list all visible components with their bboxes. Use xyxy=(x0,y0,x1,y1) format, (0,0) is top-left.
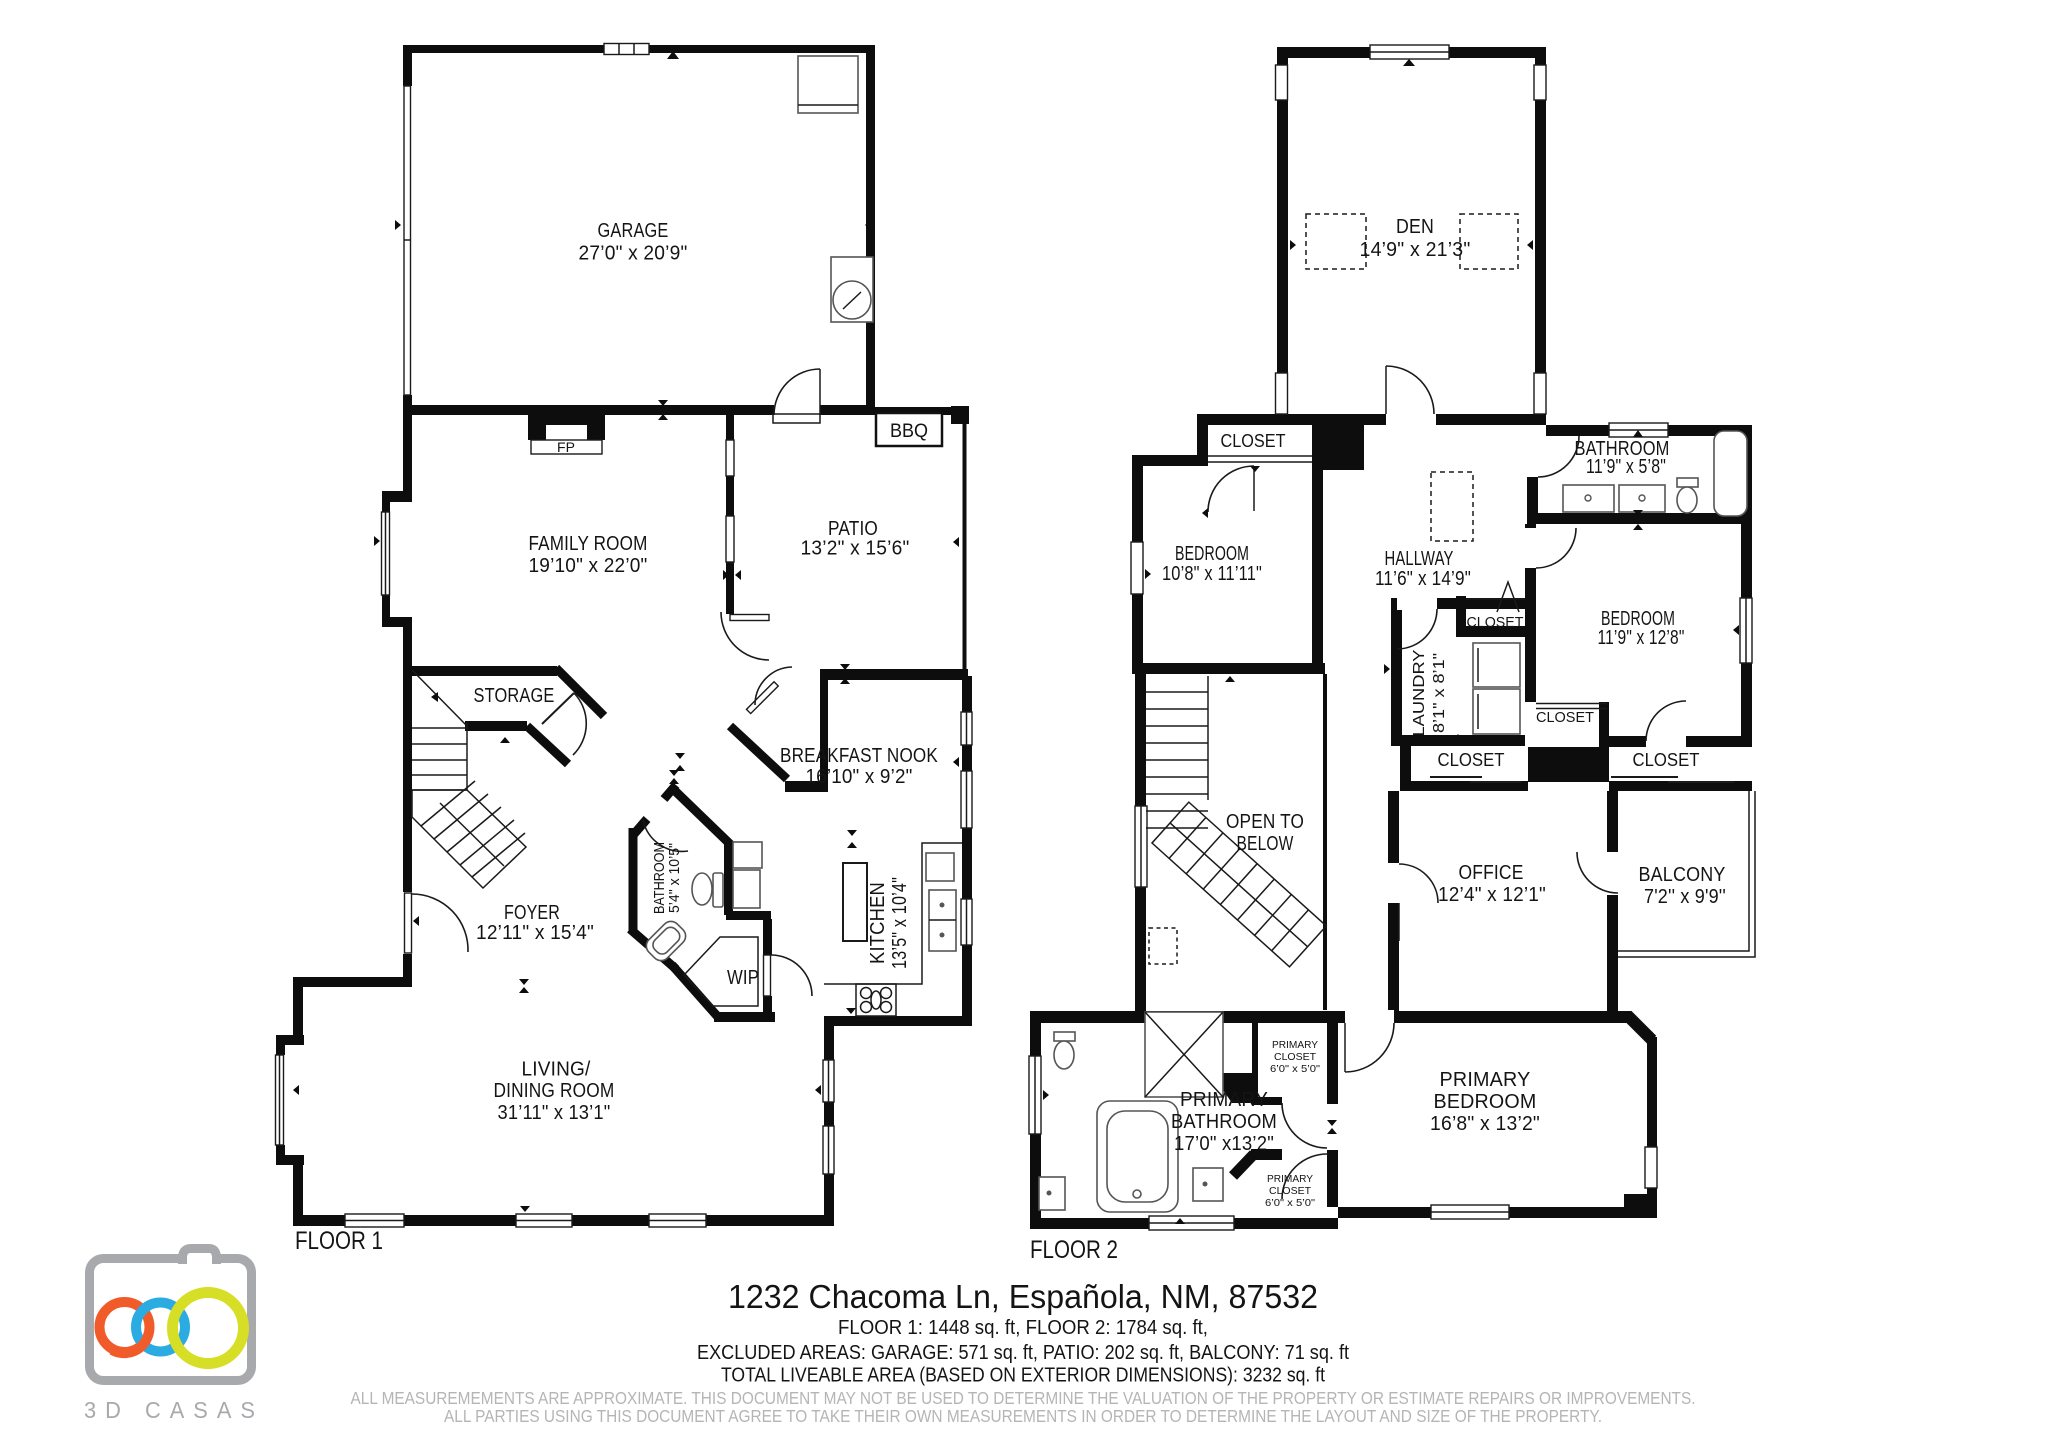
svg-text:BBQ: BBQ xyxy=(890,421,928,442)
svg-text:12’4" x 12’1": 12’4" x 12’1" xyxy=(1438,884,1546,906)
svg-text:TOTAL LIVEABLE AREA (BASED ON: TOTAL LIVEABLE AREA (BASED ON EXTERIOR D… xyxy=(721,1364,1325,1387)
svg-text:14’9" x 21’3": 14’9" x 21’3" xyxy=(1360,239,1471,261)
svg-text:5’4" x 10’5": 5’4" x 10’5" xyxy=(666,843,683,913)
svg-text:DEN: DEN xyxy=(1396,216,1434,238)
svg-text:CLOSET: CLOSET xyxy=(1438,750,1505,770)
svg-text:LAUNDRY: LAUNDRY xyxy=(1411,649,1428,736)
svg-text:ALL PARTIES USING THIS DOCUMEN: ALL PARTIES USING THIS DOCUMENT AGREE TO… xyxy=(444,1406,1602,1426)
svg-text:PRIMARY: PRIMARY xyxy=(1440,1069,1531,1091)
svg-text:13’2" x 15’6": 13’2" x 15’6" xyxy=(801,538,910,560)
svg-text:CLOSET: CLOSET xyxy=(1536,709,1594,726)
svg-text:BATHROOM: BATHROOM xyxy=(1171,1111,1277,1133)
svg-text:LIVING/: LIVING/ xyxy=(522,1059,591,1081)
svg-text:PRIMARY: PRIMARY xyxy=(1272,1039,1318,1051)
svg-text:BEDROOM: BEDROOM xyxy=(1434,1091,1537,1113)
svg-text:11’9" x 12’8": 11’9" x 12’8" xyxy=(1598,627,1685,649)
svg-text:BELOW: BELOW xyxy=(1237,833,1294,855)
svg-text:FAMILY ROOM: FAMILY ROOM xyxy=(529,533,648,555)
svg-text:6’0" x 5’0": 6’0" x 5’0" xyxy=(1270,1063,1320,1075)
svg-text:CLOSET: CLOSET xyxy=(1221,431,1286,451)
svg-text:11’6" x 14’9": 11’6" x 14’9" xyxy=(1375,568,1471,590)
svg-text:KITCHEN: KITCHEN xyxy=(867,882,889,964)
svg-text:13’5" x 10’4": 13’5" x 10’4" xyxy=(889,877,911,969)
svg-text:CLOSET: CLOSET xyxy=(1467,614,1524,631)
svg-text:CLOSET: CLOSET xyxy=(1269,1185,1312,1197)
svg-text:FLOOR 2: FLOOR 2 xyxy=(1030,1236,1118,1264)
svg-text:EXCLUDED AREAS: GARAGE: 571 sq: EXCLUDED AREAS: GARAGE: 571 sq. ft, PATI… xyxy=(697,1341,1349,1364)
svg-text:DINING ROOM: DINING ROOM xyxy=(494,1080,615,1102)
svg-text:31’11" x 13’1": 31’11" x 13’1" xyxy=(498,1102,611,1124)
svg-text:HALLWAY: HALLWAY xyxy=(1385,548,1454,570)
svg-text:CLOSET: CLOSET xyxy=(1633,750,1700,770)
svg-text:3D CASAS: 3D CASAS xyxy=(84,1397,264,1423)
svg-text:OFFICE: OFFICE xyxy=(1459,862,1524,884)
svg-text:BALCONY: BALCONY xyxy=(1639,864,1726,886)
svg-text:FLOOR 1: FLOOR 1 xyxy=(295,1227,383,1255)
svg-text:PRIMARY: PRIMARY xyxy=(1180,1089,1268,1111)
svg-text:16’10" x 9’2": 16’10" x 9’2" xyxy=(806,766,913,788)
svg-text:10’8" x 11’11": 10’8" x 11’11" xyxy=(1162,563,1262,585)
svg-text:BREAKFAST NOOK: BREAKFAST NOOK xyxy=(780,745,938,767)
svg-text:17’0" x13’2": 17’0" x13’2" xyxy=(1174,1133,1274,1155)
svg-text:BEDROOM: BEDROOM xyxy=(1175,543,1249,565)
svg-text:16’8" x 13’2": 16’8" x 13’2" xyxy=(1430,1113,1540,1135)
svg-text:6’0" x 5’0": 6’0" x 5’0" xyxy=(1265,1197,1315,1209)
svg-text:CLOSET: CLOSET xyxy=(1274,1051,1317,1063)
svg-text:FP: FP xyxy=(557,439,575,455)
svg-text:FOYER: FOYER xyxy=(504,902,560,924)
svg-text:ALL MEASUREMEMENTS ARE APPROXI: ALL MEASUREMEMENTS ARE APPROXIMATE. THIS… xyxy=(351,1388,1696,1408)
svg-text:FLOOR 1: 1448 sq. ft, FLOOR 2:: FLOOR 1: 1448 sq. ft, FLOOR 2: 1784 sq. … xyxy=(838,1316,1208,1339)
svg-text:PRIMARY: PRIMARY xyxy=(1267,1173,1313,1185)
svg-text:8’1" x 8’1": 8’1" x 8’1" xyxy=(1431,653,1448,733)
svg-text:12’11" x 15’4": 12’11" x 15’4" xyxy=(476,922,594,944)
svg-text:27’0" x 20’9": 27’0" x 20’9" xyxy=(579,243,688,265)
svg-text:11’9" x 5’8": 11’9" x 5’8" xyxy=(1586,456,1666,478)
svg-text:OPEN TO: OPEN TO xyxy=(1226,811,1304,833)
svg-text:1232 Chacoma Ln, Española, NM,: 1232 Chacoma Ln, Española, NM, 87532 xyxy=(728,1278,1318,1315)
svg-text:WIP: WIP xyxy=(727,967,759,989)
svg-text:7'2'' x 9'9'': 7'2'' x 9'9'' xyxy=(1644,886,1726,908)
svg-text:19’10" x 22’0": 19’10" x 22’0" xyxy=(529,555,648,577)
svg-text:STORAGE: STORAGE xyxy=(474,685,555,707)
svg-text:GARAGE: GARAGE xyxy=(598,220,669,242)
